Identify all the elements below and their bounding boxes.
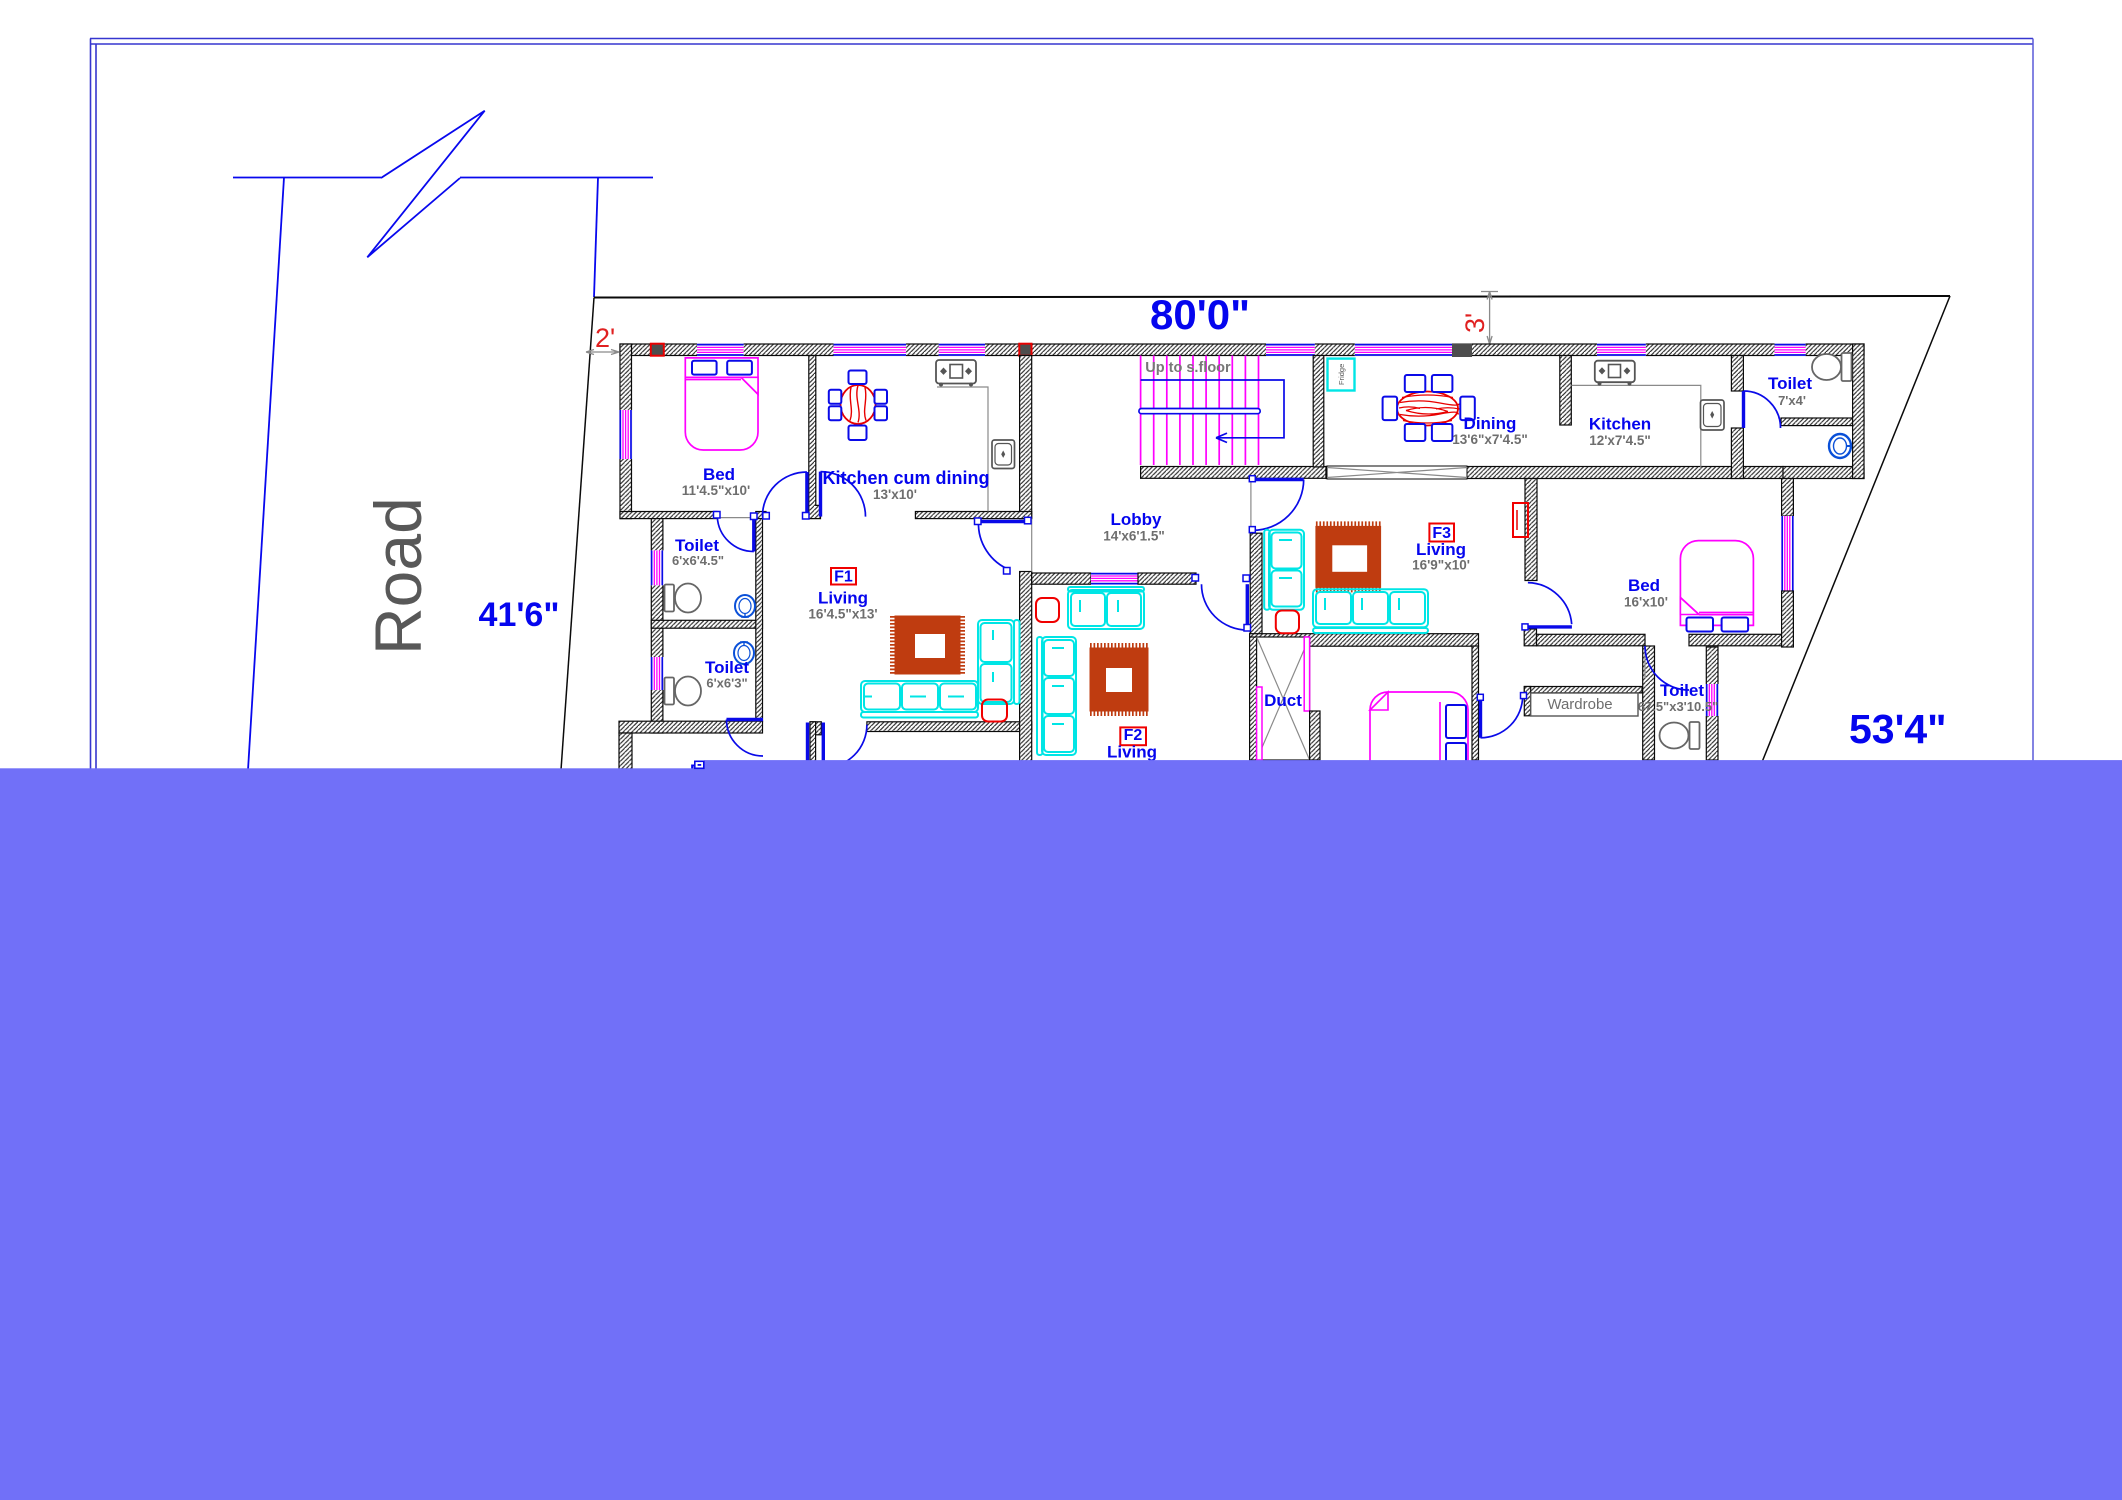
svg-text:Living: Living — [818, 589, 868, 608]
svg-text:3': 3' — [1460, 313, 1490, 333]
svg-text:16'x10': 16'x10' — [1624, 595, 1668, 610]
svg-text:Road: Road — [361, 497, 435, 655]
svg-text:Lobby: Lobby — [1111, 510, 1163, 529]
svg-text:6'x6'3": 6'x6'3" — [706, 676, 747, 691]
svg-text:Toilet: Toilet — [705, 658, 749, 677]
svg-text:80'0": 80'0" — [1150, 291, 1250, 338]
svg-text:Bed: Bed — [703, 465, 735, 484]
svg-text:Duct: Duct — [1264, 691, 1302, 710]
svg-text:Kitchen cum dining: Kitchen cum dining — [822, 468, 989, 488]
svg-text:14'x6'1.5": 14'x6'1.5" — [1103, 529, 1165, 544]
svg-text:67.5"x3'10.5": 67.5"x3'10.5" — [1638, 699, 1718, 714]
svg-text:Living: Living — [1107, 743, 1157, 762]
svg-text:12'x7'4.5": 12'x7'4.5" — [1589, 433, 1651, 448]
svg-text:Toilet: Toilet — [1768, 374, 1812, 393]
svg-text:Dining: Dining — [1464, 414, 1517, 433]
svg-text:Living: Living — [1416, 540, 1466, 559]
svg-text:7'x4': 7'x4' — [1778, 393, 1806, 408]
svg-text:Kitchen: Kitchen — [1589, 415, 1651, 434]
svg-text:Toilet: Toilet — [1660, 681, 1704, 700]
svg-text:F2: F2 — [1124, 727, 1143, 744]
svg-text:F1: F1 — [834, 569, 853, 586]
svg-text:11'4.5"x10': 11'4.5"x10' — [682, 483, 750, 498]
svg-text:Bed: Bed — [1628, 576, 1660, 595]
svg-text:2': 2' — [595, 323, 615, 353]
svg-text:Wardrobe: Wardrobe — [1547, 696, 1612, 713]
svg-text:13'6"x7'4.5": 13'6"x7'4.5" — [1452, 432, 1528, 447]
svg-text:Fridge: Fridge — [1337, 364, 1346, 385]
svg-text:6'x6'4.5": 6'x6'4.5" — [672, 553, 724, 568]
svg-text:13'x10': 13'x10' — [873, 487, 917, 502]
svg-text:16'4.5"x13': 16'4.5"x13' — [808, 607, 877, 622]
svg-text:41'6": 41'6" — [479, 596, 560, 634]
svg-text:16'9"x10': 16'9"x10' — [1412, 558, 1470, 573]
svg-text:Up to s.floor: Up to s.floor — [1145, 360, 1231, 376]
svg-text:53'4": 53'4" — [1849, 706, 1947, 752]
